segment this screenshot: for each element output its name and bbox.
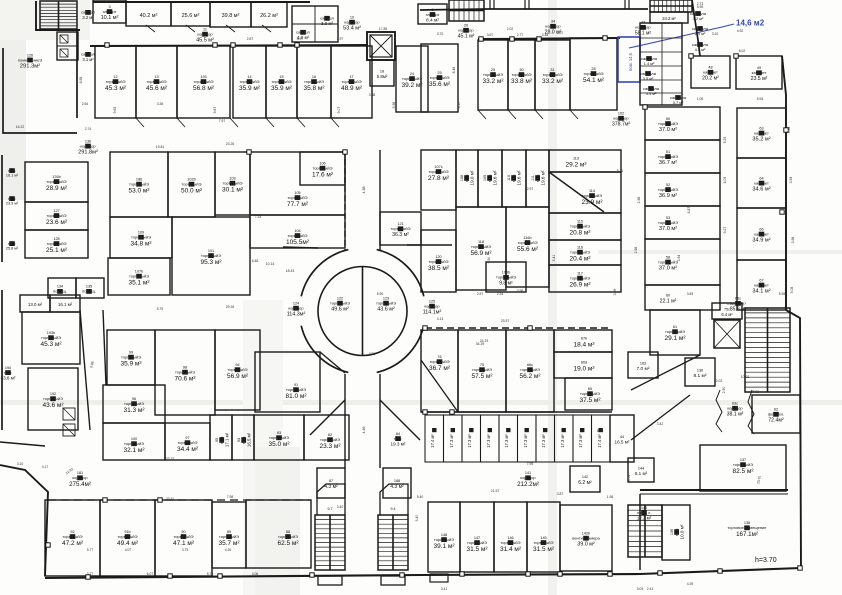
svg-text:2.57: 2.57: [477, 292, 484, 296]
svg-text:2.97: 2.97: [527, 187, 534, 191]
svg-text:3.98: 3.98: [791, 237, 795, 244]
svg-text:17.3 м²: 17.3 м²: [486, 434, 491, 448]
svg-text:16.22: 16.22: [16, 125, 25, 129]
svg-text:19.0 м²: 19.0 м²: [573, 366, 595, 373]
svg-text:3.1 м²: 3.1 м²: [82, 57, 94, 62]
svg-text:54.1 м²: 54.1 м²: [583, 77, 605, 84]
svg-text:33.2 м²: 33.2 м²: [482, 78, 504, 85]
svg-text:4.38: 4.38: [362, 187, 366, 194]
svg-text:3.98: 3.98: [517, 289, 524, 293]
svg-text:2.77: 2.77: [517, 33, 524, 37]
svg-text:31.4 м²: 31.4 м²: [500, 546, 522, 553]
svg-text:144: 144: [638, 466, 644, 470]
svg-text:19.3 м²: 19.3 м²: [391, 441, 406, 446]
svg-text:5.90: 5.90: [377, 292, 384, 296]
svg-text:50.0 м²: 50.0 м²: [181, 187, 203, 194]
svg-text:3.97: 3.97: [557, 31, 564, 35]
svg-text:47.2 м²: 47.2 м²: [62, 540, 84, 547]
svg-text:105.5м²: 105.5м²: [286, 239, 310, 246]
svg-text:25.8 м²: 25.8 м²: [6, 247, 19, 251]
svg-text:4.13: 4.13: [437, 317, 444, 321]
svg-text:37.0 м²: 37.0 м²: [659, 266, 677, 272]
svg-text:18.4 м²: 18.4 м²: [573, 342, 595, 349]
svg-text:6.1 м²: 6.1 м²: [635, 471, 648, 476]
svg-text:38.1 м²: 38.1 м²: [727, 412, 744, 418]
svg-text:36.3 м²: 36.3 м²: [392, 232, 409, 238]
svg-text:23.6 м²: 23.6 м²: [46, 219, 68, 226]
svg-text:10.14: 10.14: [266, 262, 275, 266]
svg-text:16.5 м²: 16.5 м²: [615, 439, 630, 444]
svg-text:31.3 м²: 31.3 м²: [123, 407, 145, 414]
svg-text:2.34: 2.34: [497, 292, 504, 296]
svg-text:4.06: 4.06: [252, 572, 259, 576]
svg-text:1.05: 1.05: [697, 97, 704, 101]
svg-text:36.9 м²: 36.9 м²: [659, 193, 677, 199]
svg-text:2.90: 2.90: [722, 387, 726, 394]
svg-text:3.79: 3.79: [182, 548, 189, 552]
svg-text:5.08: 5.08: [790, 287, 794, 294]
svg-text:17.3 м²: 17.3 м²: [578, 434, 583, 448]
svg-text:3.41: 3.41: [441, 587, 448, 591]
svg-text:6.43: 6.43: [597, 429, 604, 433]
svg-text:23.3 м²: 23.3 м²: [319, 443, 341, 450]
svg-text:7.98: 7.98: [227, 495, 234, 499]
svg-text:30.1 м²: 30.1 м²: [222, 186, 244, 193]
svg-text:45.3 м²: 45.3 м²: [40, 341, 62, 348]
svg-text:пом. 14,6: пом. 14,6: [628, 52, 633, 71]
svg-text:10.0 м²: 10.0 м²: [679, 524, 684, 539]
svg-text:53.4 м²: 53.4 м²: [343, 26, 361, 32]
svg-text:291.8м²: 291.8м²: [78, 150, 98, 156]
svg-text:17.6 м²: 17.6 м²: [312, 171, 334, 178]
svg-text:3.70: 3.70: [437, 32, 444, 36]
svg-text:27.8 м²: 27.8 м²: [428, 175, 450, 182]
svg-text:5.98: 5.98: [392, 102, 396, 109]
svg-text:34.1 м²: 34.1 м²: [752, 289, 770, 295]
svg-text:2.02: 2.02: [507, 27, 514, 31]
svg-text:9.8 м²: 9.8 м²: [499, 281, 513, 287]
svg-text:40.2 м²: 40.2 м²: [140, 13, 158, 19]
svg-text:70.6 м²: 70.6 м²: [174, 376, 196, 383]
svg-text:35.7 м²: 35.7 м²: [218, 540, 240, 547]
svg-text:4.3 м²: 4.3 м²: [695, 47, 706, 52]
svg-text:20.4 м²: 20.4 м²: [569, 255, 591, 262]
svg-text:4.36: 4.36: [727, 302, 734, 306]
svg-text:33.6 м²: 33.6 м²: [1, 375, 16, 380]
svg-text:35.9 м²: 35.9 м²: [271, 85, 293, 92]
svg-text:4.92: 4.92: [737, 29, 744, 33]
svg-text:17.85: 17.85: [379, 27, 388, 31]
svg-text:7.95: 7.95: [527, 462, 534, 466]
svg-text:6.4 м²: 6.4 м²: [721, 312, 733, 317]
svg-text:8.48: 8.48: [452, 67, 456, 74]
svg-text:95.3 м²: 95.3 м²: [200, 259, 222, 266]
svg-text:28.9 м²: 28.9 м²: [46, 185, 68, 192]
svg-text:35.9 м²: 35.9 м²: [120, 361, 142, 368]
svg-text:3.5 м²: 3.5 м²: [643, 76, 654, 81]
svg-text:23.37: 23.37: [166, 457, 175, 461]
svg-text:4.07: 4.07: [125, 548, 132, 552]
svg-text:9.27: 9.27: [723, 227, 727, 234]
svg-text:4.3 м²: 4.3 м²: [324, 484, 338, 490]
svg-text:16.1 м²: 16.1 м²: [6, 174, 19, 178]
svg-text:6.07: 6.07: [147, 572, 154, 576]
svg-text:39.8 м²: 39.8 м²: [222, 13, 240, 19]
svg-text:3.74: 3.74: [627, 475, 631, 482]
svg-text:9.07: 9.07: [337, 107, 341, 114]
svg-text:57.5 м²: 57.5 м²: [471, 373, 493, 380]
svg-text:13.0 м²: 13.0 м²: [28, 302, 43, 307]
svg-text:39.1 м²: 39.1 м²: [433, 543, 455, 550]
svg-text:29.1 м²: 29.1 м²: [664, 335, 686, 342]
svg-text:82.5 м²: 82.5 м²: [732, 468, 754, 475]
svg-text:3.48: 3.48: [542, 33, 549, 37]
svg-text:19.6 м²: 19.6 м²: [540, 170, 545, 185]
svg-text:3.83: 3.83: [687, 292, 694, 296]
svg-text:36.7 м²: 36.7 м²: [659, 160, 677, 166]
svg-text:14,6 м2: 14,6 м2: [736, 19, 765, 28]
svg-text:19.0 м²: 19.0 м²: [469, 170, 474, 185]
svg-text:17.3 м²: 17.3 м²: [467, 434, 472, 448]
svg-text:17.3 м²: 17.3 м²: [560, 434, 565, 448]
svg-text:18.43: 18.43: [286, 269, 295, 273]
svg-text:2.98: 2.98: [637, 197, 641, 204]
svg-text:113: 113: [573, 157, 579, 161]
svg-text:17.3 м²: 17.3 м²: [523, 434, 528, 448]
svg-text:26.9 м²: 26.9 м²: [569, 282, 591, 289]
svg-text:5.79: 5.79: [207, 572, 214, 576]
svg-text:3.99: 3.99: [613, 289, 617, 296]
svg-text:29.2 м²: 29.2 м²: [565, 161, 587, 168]
svg-text:2.98: 2.98: [634, 247, 638, 254]
svg-text:10.02: 10.02: [741, 375, 750, 379]
svg-text:34.6 м²: 34.6 м²: [752, 187, 770, 193]
svg-text:163: 163: [640, 361, 646, 365]
svg-text:34.4 м²: 34.4 м²: [177, 446, 199, 453]
svg-text:17.3 м²: 17.3 м²: [541, 434, 546, 448]
svg-text:3.2 м²: 3.2 м²: [82, 15, 94, 20]
svg-text:34.8 м²: 34.8 м²: [130, 240, 152, 247]
svg-text:3.67: 3.67: [487, 33, 494, 37]
svg-text:h=3.70: h=3.70: [755, 557, 777, 564]
svg-text:35.0 м²: 35.0 м²: [268, 441, 290, 448]
svg-text:7.97: 7.97: [219, 119, 226, 123]
svg-text:3.88: 3.88: [369, 93, 376, 97]
svg-text:45.6 м²: 45.6 м²: [146, 85, 168, 92]
svg-text:20.8 м²: 20.8 м²: [569, 229, 591, 236]
svg-text:37.0 м²: 37.0 м²: [659, 127, 677, 133]
svg-text:3.7 м²: 3.7 м²: [673, 100, 684, 105]
svg-text:3.97: 3.97: [297, 37, 304, 41]
svg-text:3.94: 3.94: [677, 255, 681, 262]
svg-text:81.0 м²: 81.0 м²: [285, 393, 307, 400]
svg-text:16.1 м²: 16.1 м²: [58, 302, 73, 307]
svg-text:17.4 м²: 17.4 м²: [597, 434, 602, 448]
svg-text:43.6 м²: 43.6 м²: [42, 402, 64, 409]
svg-text:6.02: 6.02: [739, 49, 746, 53]
svg-text:188: 188: [394, 479, 400, 483]
svg-text:17.3 м²: 17.3 м²: [449, 434, 454, 448]
svg-text:2.87: 2.87: [247, 37, 254, 41]
svg-text:4.39: 4.39: [687, 582, 694, 586]
svg-text:1.98: 1.98: [607, 495, 614, 499]
svg-text:32.1 м²: 32.1 м²: [123, 447, 145, 454]
svg-text:3.97: 3.97: [337, 37, 344, 41]
svg-text:21.57: 21.57: [491, 489, 500, 493]
svg-text:31.5 м²: 31.5 м²: [466, 546, 488, 553]
svg-text:34.29: 34.29: [476, 342, 485, 346]
svg-text:9.4: 9.4: [391, 507, 396, 511]
svg-text:35.1 м²: 35.1 м²: [128, 280, 150, 287]
svg-text:4.3 м²: 4.3 м²: [390, 484, 404, 490]
svg-text:378.7м²: 378.7м²: [612, 122, 631, 128]
svg-text:3.87: 3.87: [557, 492, 564, 496]
svg-text:9.29: 9.29: [723, 137, 727, 144]
svg-text:9.7: 9.7: [328, 507, 333, 511]
svg-text:9.65: 9.65: [113, 107, 117, 114]
svg-text:48.9 м²: 48.9 м²: [341, 85, 363, 92]
svg-text:45.1 м²: 45.1 м²: [458, 34, 475, 40]
svg-text:35.6 м²: 35.6 м²: [429, 81, 451, 88]
svg-text:77.7 м²: 77.7 м²: [287, 201, 309, 208]
svg-text:34.9 м²: 34.9 м²: [752, 238, 770, 244]
svg-text:16.5 м²: 16.5 м²: [246, 432, 251, 447]
svg-text:37.5 м²: 37.5 м²: [579, 397, 601, 404]
svg-text:56.9 м²: 56.9 м²: [470, 250, 492, 257]
svg-text:1.4 м²: 1.4 м²: [644, 61, 655, 66]
svg-text:7.0 м²: 7.0 м²: [637, 366, 650, 372]
svg-text:5.71: 5.71: [617, 169, 624, 173]
svg-text:60: 60: [666, 294, 670, 298]
svg-text:53.0 м²: 53.0 м²: [128, 187, 150, 194]
svg-text:5.41: 5.41: [552, 255, 556, 262]
svg-text:8.09: 8.09: [723, 177, 727, 184]
svg-text:114.3м²: 114.3м²: [287, 312, 306, 318]
svg-text:56.9 м²: 56.9 м²: [227, 373, 249, 380]
svg-text:6.87: 6.87: [687, 207, 691, 214]
svg-text:29.26: 29.26: [226, 305, 235, 309]
svg-text:43.6 м²: 43.6 м²: [377, 307, 395, 313]
svg-text:39.0 м²: 39.0 м²: [577, 542, 595, 548]
svg-text:31.5 м²: 31.5 м²: [533, 546, 555, 553]
svg-text:2.64: 2.64: [82, 102, 89, 106]
svg-text:36.7 м²: 36.7 м²: [429, 365, 451, 372]
svg-text:5.8м²: 5.8м²: [377, 74, 388, 79]
svg-text:58.1 м²: 58.1 м²: [635, 31, 652, 37]
svg-text:23.9 м²: 23.9 м²: [581, 199, 603, 206]
svg-text:19.6 м²: 19.6 м²: [516, 170, 521, 185]
svg-text:136: 136: [697, 368, 703, 372]
svg-text:3.98: 3.98: [369, 352, 376, 356]
svg-text:4.17: 4.17: [42, 465, 49, 469]
svg-text:23.31: 23.31: [166, 497, 175, 501]
svg-text:212.2м²: 212.2м²: [517, 481, 539, 488]
svg-text:8.10: 8.10: [457, 102, 461, 109]
svg-text:3.94: 3.94: [789, 177, 793, 184]
svg-text:56.8 м²: 56.8 м²: [193, 85, 215, 92]
svg-text:4.26: 4.26: [225, 548, 232, 552]
svg-text:35.2 м²: 35.2 м²: [752, 137, 770, 143]
svg-text:5.40: 5.40: [415, 515, 419, 522]
svg-text:24.2 м²: 24.2 м²: [662, 16, 676, 21]
svg-text:17.4 м²: 17.4 м²: [430, 434, 435, 448]
svg-text:5.40: 5.40: [417, 495, 424, 499]
svg-text:25.1 м²: 25.1 м²: [46, 247, 68, 254]
svg-text:33.8 м²: 33.8 м²: [511, 78, 533, 85]
svg-text:33.2 м²: 33.2 м²: [542, 78, 564, 85]
svg-text:23.5 м²: 23.5 м²: [751, 76, 768, 82]
svg-text:37.0 м²: 37.0 м²: [659, 226, 677, 232]
svg-text:23.26: 23.26: [226, 142, 235, 146]
svg-text:3.10: 3.10: [712, 32, 719, 36]
svg-text:49.4 м²: 49.4 м²: [117, 540, 139, 547]
svg-text:3.36: 3.36: [157, 102, 164, 106]
svg-text:2.74: 2.74: [85, 127, 92, 131]
svg-text:10.1 м²: 10.1 м²: [101, 15, 119, 21]
svg-text:12.2 м²: 12.2 м²: [637, 515, 652, 520]
svg-text:5.95: 5.95: [697, 5, 704, 9]
svg-text:23.9 м²: 23.9 м²: [6, 202, 19, 206]
svg-text:25.6 м²: 25.6 м²: [182, 13, 200, 19]
svg-text:3.03: 3.03: [637, 587, 644, 591]
svg-text:114.1м²: 114.1м²: [423, 310, 442, 316]
svg-text:5.77: 5.77: [87, 548, 94, 552]
svg-text:17.92: 17.92: [751, 390, 760, 394]
svg-text:35.9 м²: 35.9 м²: [239, 85, 261, 92]
svg-text:142: 142: [582, 475, 588, 479]
svg-text:5.95: 5.95: [779, 292, 786, 296]
svg-text:5.94: 5.94: [757, 97, 764, 101]
svg-text:19.81: 19.81: [156, 145, 165, 149]
svg-text:56.2 м²: 56.2 м²: [519, 373, 541, 380]
svg-text:20.2 м²: 20.2 м²: [702, 76, 719, 82]
svg-text:12.02: 12.02: [714, 379, 723, 383]
svg-text:167.1м²: 167.1м²: [736, 531, 758, 538]
svg-text:17.1 м²: 17.1 м²: [224, 432, 229, 447]
svg-text:17.3 м²: 17.3 м²: [504, 434, 509, 448]
svg-text:22.1 м²: 22.1 м²: [660, 299, 677, 305]
svg-text:47.1 м²: 47.1 м²: [173, 540, 195, 547]
svg-text:19.6 м²: 19.6 м²: [492, 170, 497, 185]
svg-text:3.0 м²: 3.0 м²: [321, 21, 334, 26]
svg-text:3.5 м²: 3.5 м²: [646, 91, 657, 96]
svg-text:4.46: 4.46: [362, 427, 366, 434]
svg-text:275.4м²: 275.4м²: [69, 481, 91, 488]
svg-text:291.3м²: 291.3м²: [20, 64, 40, 70]
svg-text:7.33: 7.33: [255, 215, 262, 219]
svg-text:67b: 67b: [581, 337, 587, 341]
svg-text:2.41: 2.41: [647, 587, 654, 591]
svg-text:49.6 м²: 49.6 м²: [331, 307, 349, 313]
svg-text:5.79: 5.79: [157, 307, 164, 311]
svg-text:38.5 м²: 38.5 м²: [428, 265, 450, 272]
svg-text:6.2 м²: 6.2 м²: [578, 480, 592, 486]
svg-text:87: 87: [329, 479, 333, 483]
svg-text:62.5 м²: 62.5 м²: [277, 540, 299, 547]
svg-text:8.58: 8.58: [79, 77, 83, 84]
svg-text:9.90: 9.90: [487, 257, 491, 264]
svg-text:72.4м²: 72.4м²: [768, 418, 784, 424]
svg-text:66d: 66d: [581, 361, 587, 365]
svg-text:45.5 м²: 45.5 м²: [196, 38, 214, 44]
svg-text:3.42: 3.42: [657, 422, 664, 426]
svg-text:44: 44: [620, 435, 624, 439]
svg-text:6.48: 6.48: [252, 259, 259, 263]
svg-text:39.2 м²: 39.2 м²: [401, 82, 423, 89]
svg-text:3.40: 3.40: [337, 505, 344, 509]
svg-text:8.1 м²: 8.1 м²: [694, 373, 707, 379]
svg-text:23.57: 23.57: [501, 319, 510, 323]
svg-text:26.2 м²: 26.2 м²: [260, 13, 278, 19]
svg-text:8.4 м²: 8.4 м²: [426, 17, 439, 23]
svg-text:45.3 м²: 45.3 м²: [105, 85, 127, 92]
svg-text:55.6 м²: 55.6 м²: [517, 246, 539, 253]
svg-text:3.10: 3.10: [17, 462, 24, 466]
svg-text:35.8 м²: 35.8 м²: [303, 85, 325, 92]
svg-text:9.87: 9.87: [213, 107, 217, 114]
